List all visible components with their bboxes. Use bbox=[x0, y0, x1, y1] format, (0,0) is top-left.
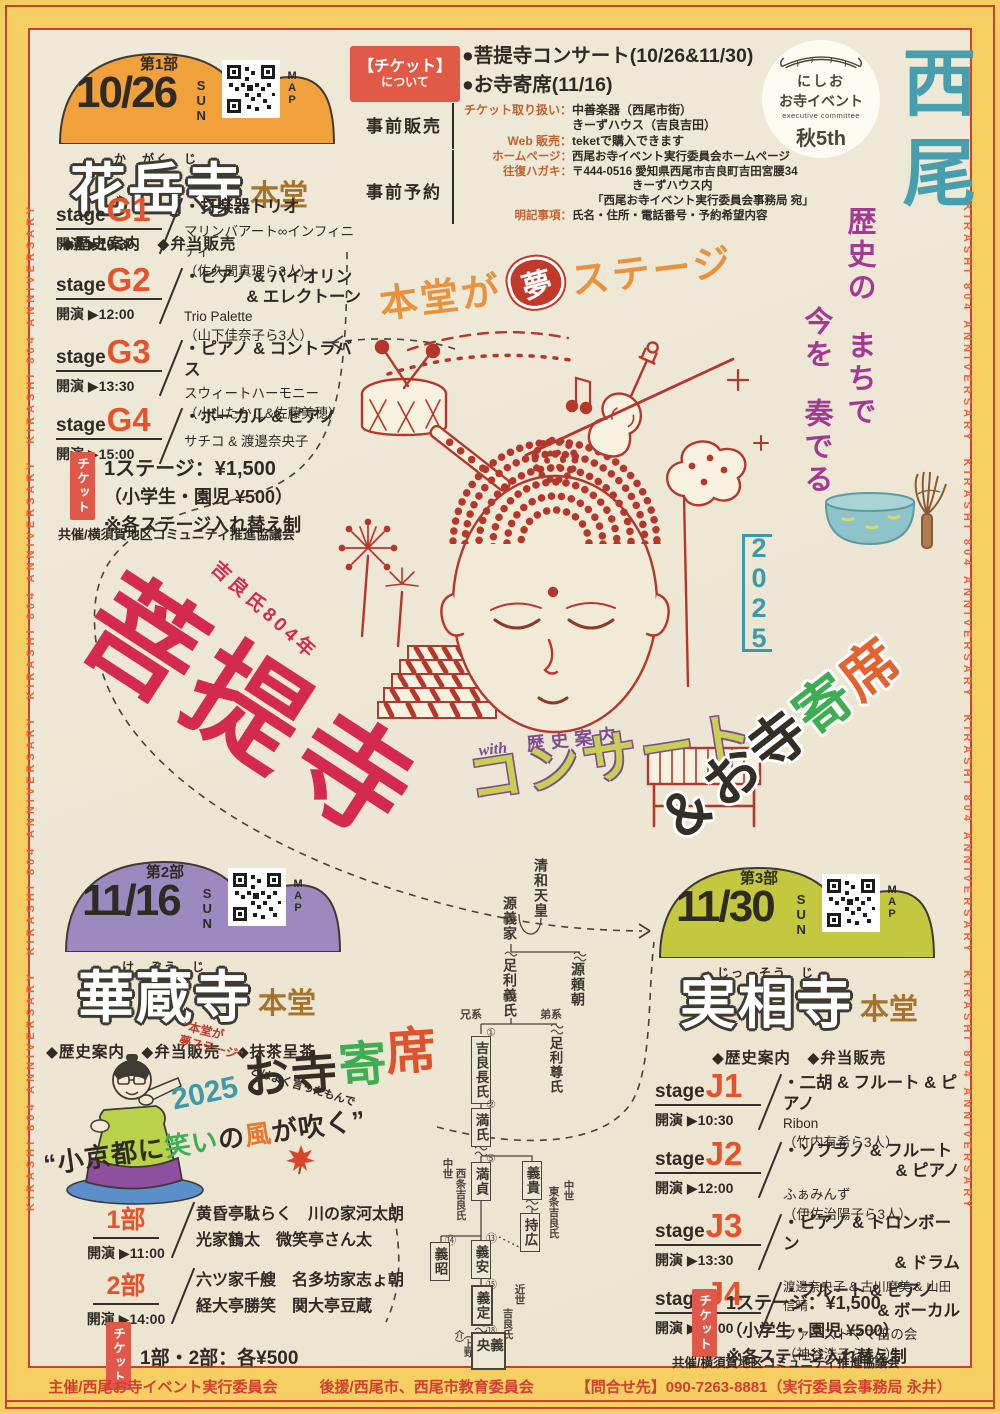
stage-title: ・ピアノ & コントラバス bbox=[184, 339, 361, 380]
ticket-about-box: 【チケット】 について bbox=[350, 46, 460, 102]
presale-label: 事前販売 bbox=[366, 112, 442, 137]
ticket-about-line2: について bbox=[381, 76, 429, 90]
tree-node-yoshihisa: 義央 bbox=[471, 1332, 506, 1370]
slogan-col2a: 今を bbox=[795, 306, 837, 372]
stage-word: stage bbox=[655, 1149, 705, 1171]
part2-temple-kanji: 華蔵寺 bbox=[78, 970, 252, 1026]
part3-date: 11/30 bbox=[676, 882, 774, 932]
tree-era-kinsei: 近世 bbox=[514, 1284, 525, 1305]
event-committee-logo: にしお お寺イベント executive committee 秋5th bbox=[762, 40, 880, 158]
ticket-target-events: ●菩提寺コンサート(10/26&11/30) ●お寺寄席(11/16) bbox=[462, 42, 753, 101]
yose-performers-line2: 経大亭勝笑 関大亭豆蔵 bbox=[196, 1294, 404, 1320]
stage-performer: ふぁみんず bbox=[783, 1183, 960, 1203]
stage-title: ・ボーカル & ピアノ bbox=[184, 407, 361, 428]
part2-map-label: MAP bbox=[292, 878, 304, 914]
slash-divider bbox=[159, 268, 183, 324]
tree-note-kozukenosuke: （上野介） bbox=[454, 1330, 472, 1370]
stage-time: 開演 ▶12:00 bbox=[56, 304, 162, 324]
stage-number: G1 bbox=[107, 196, 151, 224]
ticket-bullet-concert: ●菩提寺コンサート(10/26&11/30) bbox=[462, 42, 753, 71]
stage-title: ・ピアノ & トロンボーン bbox=[783, 1213, 960, 1254]
stage-number: J1 bbox=[706, 1072, 743, 1100]
stage-time: 開演 ▶13:30 bbox=[56, 376, 162, 396]
stage-word: stage bbox=[56, 415, 106, 437]
tree-node-yoshisada: 義定 bbox=[471, 1285, 493, 1326]
part3-date-cloud: 第3部 11/30 SUN MAP bbox=[658, 860, 936, 958]
stage-word: stage bbox=[56, 275, 106, 297]
stage-number: J2 bbox=[706, 1140, 743, 1168]
part1-cohost: 共催/横須賀地区コミュニティ推進協議会 bbox=[58, 524, 295, 543]
slogan-col1b: まちで bbox=[838, 330, 880, 429]
reserve-row-text: 西尾お寺イベント実行委員会ホームページ bbox=[572, 151, 790, 163]
slogan-col2b: 奏でる bbox=[795, 398, 837, 497]
tree-node-osauji: 吉良長氏 bbox=[471, 1036, 491, 1104]
part3-cohost: 共催/横須賀地区コミュニティ推進協議会 bbox=[672, 1352, 900, 1371]
part3-day: SUN bbox=[794, 892, 808, 937]
yose-performers-line1: 六ツ家千艘 名多坊家志ょ朝 bbox=[196, 1268, 404, 1294]
tree-node-yoshitaka: 義貴 bbox=[522, 1161, 542, 1200]
ticket-price-child: （小学生・園児 ¥500） bbox=[726, 1317, 907, 1341]
yose-part-row-2: 2部 開演 ▶14:00 六ツ家千艘 名多坊家志ょ朝 経大亭勝笑 関大亭豆蔵 bbox=[78, 1266, 408, 1329]
stage-time: 開演 ▶10:30 bbox=[655, 1110, 761, 1130]
presale-row-text: 中善楽器（西尾市街） bbox=[572, 103, 692, 117]
stage-number: G2 bbox=[107, 266, 151, 294]
slash-divider bbox=[171, 1268, 195, 1324]
part2-date-cloud: 第2部 11/16 SUN MAP bbox=[64, 854, 342, 952]
reserve-label: 事前予約 bbox=[366, 178, 442, 203]
stage-word: stage bbox=[56, 347, 106, 369]
tree-node-yoshiyasu: 義安 bbox=[471, 1240, 491, 1279]
presale-row-text: teketで購入できます bbox=[572, 134, 684, 148]
footer-contact: 【問合せ先】090-7263-8881（実行委員会事務局 永井） bbox=[576, 1376, 952, 1397]
slash-divider bbox=[159, 340, 183, 396]
part1-date: 10/26 bbox=[76, 68, 176, 118]
slash-divider bbox=[758, 1142, 782, 1198]
slash-divider bbox=[159, 198, 183, 254]
part2-hall-label: 本堂 bbox=[258, 980, 316, 1022]
frame-bottom-line bbox=[5, 1400, 995, 1402]
kira-family-tree: 清和天皇 源義家 源頼朝 足利義氏 兄系 弟系 足利尊氏 ① 吉良長氏 ② 満氏… bbox=[420, 856, 605, 1370]
part2-day: SUN bbox=[200, 886, 214, 931]
presale-rows: チケット取り扱い：中善楽器（西尾市街） きーずハウス（吉良吉田） Web 販売：… bbox=[452, 103, 716, 149]
logo-line2: お寺イベント bbox=[779, 91, 863, 111]
phrase-d: 風 bbox=[243, 1118, 274, 1151]
yose-yo: 寄 bbox=[336, 1023, 389, 1096]
part3-hall-label: 本堂 bbox=[860, 986, 918, 1028]
reserve-row-label: 明記事項： bbox=[464, 209, 572, 224]
stage-title: ・二胡 & フルート & ピアノ bbox=[783, 1073, 960, 1114]
slogan-col1a: 歴史の bbox=[838, 206, 880, 305]
title-year: 2025 bbox=[745, 533, 772, 653]
reserve-row-text: 〒444-0516 愛知県西尾市吉良町吉田宮腰34 bbox=[572, 166, 798, 178]
slash-divider bbox=[758, 1074, 782, 1130]
tree-node-yoshiaki: 義昭 bbox=[430, 1242, 450, 1281]
yose-part-row-1: 1部 開演 ▶11:00 黄昏亭駄らく 川の家河太朗 光家鶴太 微笑亭さん太 bbox=[78, 1200, 408, 1263]
tree-node-takauji: 足利尊氏 bbox=[548, 1036, 562, 1094]
reserve-row-text: 氏名・住所・電話番号・予約希望内容 bbox=[572, 210, 768, 222]
tree-node-yoritomo: 源頼朝 bbox=[571, 962, 585, 1007]
ticket-bullet-yose: ●お寺寄席(11/16) bbox=[462, 71, 753, 100]
stage-number: G3 bbox=[107, 338, 151, 366]
edge-text-right: KIRASHI 804 ANNIVERSARY KIRASHI 804 ANNI… bbox=[960, 57, 976, 1357]
ticket-about-line1: 【チケット】 bbox=[358, 58, 451, 76]
reserve-row-label: ホームページ： bbox=[464, 150, 572, 165]
tree-label-elder: 兄系 bbox=[460, 1006, 482, 1022]
tree-node-mitsusada: 満貞 bbox=[471, 1162, 491, 1201]
ticket-price-child: （小学生・園児 ¥500） bbox=[104, 483, 301, 509]
stage-performer: サチコ & 渡邊奈央子 bbox=[184, 430, 361, 450]
yose-performers-line1: 黄昏亭駄らく 川の家河太朗 bbox=[196, 1202, 404, 1228]
tree-name-west: 西条吉良氏 bbox=[455, 1168, 466, 1221]
tree-node-seiwa: 清和天皇 bbox=[534, 858, 548, 918]
stage-time: 開演 ▶12:00 bbox=[655, 1178, 761, 1198]
part1-date-cloud: 第1部 10/26 SUN MAP bbox=[58, 46, 336, 144]
slash-divider bbox=[758, 1214, 782, 1270]
part3-map-label: MAP bbox=[886, 884, 898, 920]
reserve-rows: ホームページ：西尾お寺イベント実行委員会ホームページ 往復ハガキ：〒444-05… bbox=[452, 150, 814, 224]
tree-era-west: 中世 bbox=[442, 1158, 453, 1179]
stage-performer: Trio Palette bbox=[184, 309, 361, 324]
part3-map-qr-code bbox=[822, 874, 880, 932]
presale-row-label: チケット取り扱い： bbox=[464, 103, 572, 118]
stage-title: ・ソプラノ & フルート bbox=[783, 1141, 960, 1162]
stage-row-g2: stageG2 開演 ▶12:00 ・ピアノ & バイオリン & エレクトーン … bbox=[56, 266, 361, 344]
part3-temple-kanji: 実相寺 bbox=[680, 976, 854, 1032]
event-poster: KIRASHI 804 ANNIVERSARY KIRASHI 804 ANNI… bbox=[0, 0, 1000, 1414]
stage-performer: スウィートハーモニー bbox=[184, 382, 361, 402]
logo-line4: 秋5th bbox=[796, 122, 846, 151]
phrase-c: の bbox=[216, 1121, 247, 1154]
yose-part-id: 2部 bbox=[93, 1266, 160, 1305]
part2-map-qr-code bbox=[228, 868, 286, 926]
stage-word: stage bbox=[56, 205, 106, 227]
ticket-price: 1ステージ：¥1,500 bbox=[726, 1289, 907, 1315]
footer-support: 後援/西尾市、西尾市教育委員会 bbox=[320, 1376, 534, 1397]
part2-ticket-price: 1部・2部：各¥500 bbox=[140, 1343, 298, 1370]
tree-label-younger: 弟系 bbox=[540, 1006, 562, 1022]
stage-number: J3 bbox=[706, 1212, 743, 1240]
phrase-b: 笑い bbox=[163, 1125, 221, 1162]
stage-title: ・ピアノ & バイオリン bbox=[184, 267, 361, 288]
footer-credits: 主催/西尾お寺イベント実行委員会 後援/西尾市、西尾市教育委員会 【問合せ先】0… bbox=[30, 1376, 970, 1397]
dream-badge: 夢 bbox=[502, 250, 570, 315]
stage-row-j2: stageJ2 開演 ▶12:00 ・ソプラノ & フルート & ピアノ ふぁみ… bbox=[655, 1140, 960, 1223]
slash-divider bbox=[171, 1202, 195, 1258]
presale-row-label: Web 販売： bbox=[464, 134, 572, 149]
ticket-price: 1ステージ：¥1,500 bbox=[104, 452, 301, 481]
part2-date: 11/16 bbox=[82, 876, 180, 926]
tree-node-mochihiro: 持広 bbox=[520, 1213, 540, 1252]
yose-otera: お寺 bbox=[241, 1036, 341, 1109]
part1-map-qr-code bbox=[222, 60, 280, 118]
stage-performer: マリンバアート∞インフィニティ bbox=[184, 220, 361, 260]
stage-title: ・打楽器トリオ bbox=[184, 197, 361, 218]
tree-node-yoshiie: 源義家 bbox=[503, 896, 517, 941]
stage-time: 開演 ▶10:30 bbox=[56, 234, 162, 254]
stage-time: 開演 ▶13:30 bbox=[655, 1250, 761, 1270]
presale-row-text: きーずハウス（吉良吉田） bbox=[572, 118, 716, 132]
yose-performers-line2: 光家鶴太 微笑亭さん太 bbox=[196, 1228, 404, 1254]
yose-part-id: 1部 bbox=[93, 1200, 160, 1239]
brand-nishio: 西尾 bbox=[896, 44, 970, 224]
tree-node-mitsuuji: 満氏 bbox=[471, 1108, 491, 1147]
stage-word: stage bbox=[655, 1081, 705, 1103]
part3-features: ◆歴史案内 ◆弁当販売 bbox=[712, 1046, 886, 1068]
yose-part-time: 開演 ▶11:00 bbox=[78, 1243, 174, 1263]
footer-host: 主催/西尾お寺イベント実行委員会 bbox=[48, 1376, 277, 1397]
reserve-row-text: 「西尾お寺イベント実行委員会事務局 宛」 bbox=[592, 195, 814, 207]
stage-word: stage bbox=[655, 1221, 705, 1243]
title-year-bracket: 2025 bbox=[742, 534, 772, 652]
stage-title2: & ドラム bbox=[783, 1254, 960, 1274]
ticket-tag: チケット bbox=[70, 452, 95, 520]
tree-era-east: 中世 bbox=[563, 1180, 574, 1201]
edge-text-left: KIRASHI 804 ANNIVERSARY KIRASHI 804 ANNI… bbox=[22, 57, 38, 1357]
part1-day: SUN bbox=[194, 78, 208, 123]
reserve-row-text: きーずハウス内 bbox=[632, 180, 713, 192]
stage-title2: & エレクトーン bbox=[184, 288, 361, 308]
reserve-row-label: 往復ハガキ： bbox=[464, 165, 572, 180]
ticket-tag: チケット bbox=[692, 1289, 717, 1357]
logo-line3: executive committee bbox=[782, 111, 860, 120]
part3-temple-name: 実相寺 本堂 bbox=[680, 976, 918, 1032]
stage-performer: Ribon bbox=[783, 1116, 960, 1131]
temple-roof-icon bbox=[778, 47, 864, 71]
logo-line1: にしお bbox=[797, 71, 845, 91]
tree-node-yoshiuji: 足利義氏 bbox=[503, 958, 517, 1018]
part2-temple-name: 華蔵寺 本堂 bbox=[78, 970, 316, 1026]
stage-number: G4 bbox=[107, 406, 151, 434]
tea-bowl-whisk-illustration bbox=[818, 470, 948, 565]
part1-map-label: MAP bbox=[286, 70, 298, 106]
tree-name-east: 東条吉良氏 bbox=[548, 1186, 559, 1239]
stage-title2: & ピアノ bbox=[783, 1162, 960, 1182]
